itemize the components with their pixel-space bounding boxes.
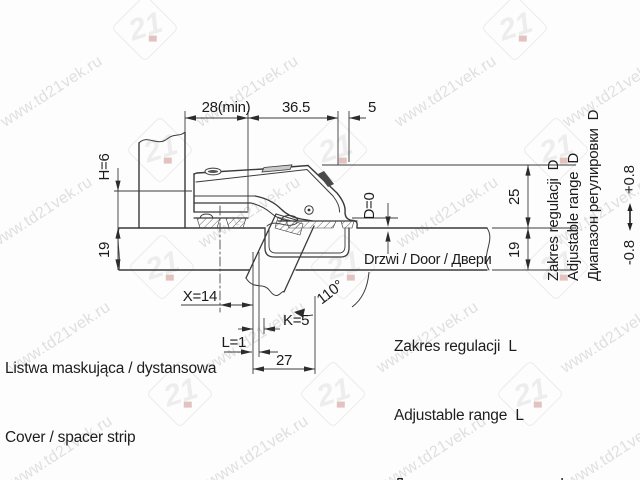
dim-28min: 28(min) [202, 99, 251, 116]
cover-strip-caption-en: Cover / spacer strip [5, 426, 279, 449]
cam-slot-icon [318, 171, 334, 187]
range-l-line-pl: Zakres regulacji L [394, 335, 569, 358]
dim-25: 25 [506, 189, 523, 205]
range-l-line-en: Adjustable range L [394, 404, 569, 427]
cover-strip-caption-pl: Listwa maskująca / dystansowa [5, 357, 279, 380]
mounting-plate [194, 212, 248, 228]
arm-screw-icon [205, 168, 221, 175]
range-d-line-en: Adjustable range D [566, 153, 582, 281]
door-label: Drzwi / Door / Двери [364, 252, 492, 268]
range-d-line-pl: Zakres regulacji D [546, 160, 562, 281]
hinge-technical-drawing: www.td21vek.ruwww.td21vek.ruwww.td21vek.… [0, 0, 640, 480]
dim-36-5: 36.5 [282, 99, 310, 116]
double-arrow-icon [625, 202, 635, 232]
cabinet-bottom-panel [118, 228, 265, 270]
dim-d0: D=0 [361, 192, 378, 219]
range-d-values: -0.8 +0.8 [606, 165, 640, 281]
arm-slot-icon [262, 165, 292, 172]
range-d-line-ru: Диапазон регулировки D [586, 110, 602, 281]
dim-k5: K=5 [283, 312, 309, 329]
range-l-line-ru: Диапазон регулировки L [394, 473, 569, 480]
range-d-min: -0.8 [622, 240, 638, 265]
pivot-screw-icon [305, 206, 313, 214]
dim-5: 5 [368, 99, 376, 116]
dim-x14: X=14 [183, 288, 217, 305]
range-d-max: +0.8 [622, 165, 638, 194]
dim-19-left: 19 [96, 242, 113, 258]
side-panel [139, 132, 185, 228]
range-l-caption: Zakres regulacji L Adjustable range L Ди… [394, 289, 569, 480]
dim-19-right: 19 [506, 242, 523, 258]
cover-strip-caption: Listwa maskująca / dystansowa Cover / sp… [5, 311, 279, 480]
dim-110deg: 110° [314, 277, 347, 308]
dim-h6: H=6 [96, 153, 113, 180]
